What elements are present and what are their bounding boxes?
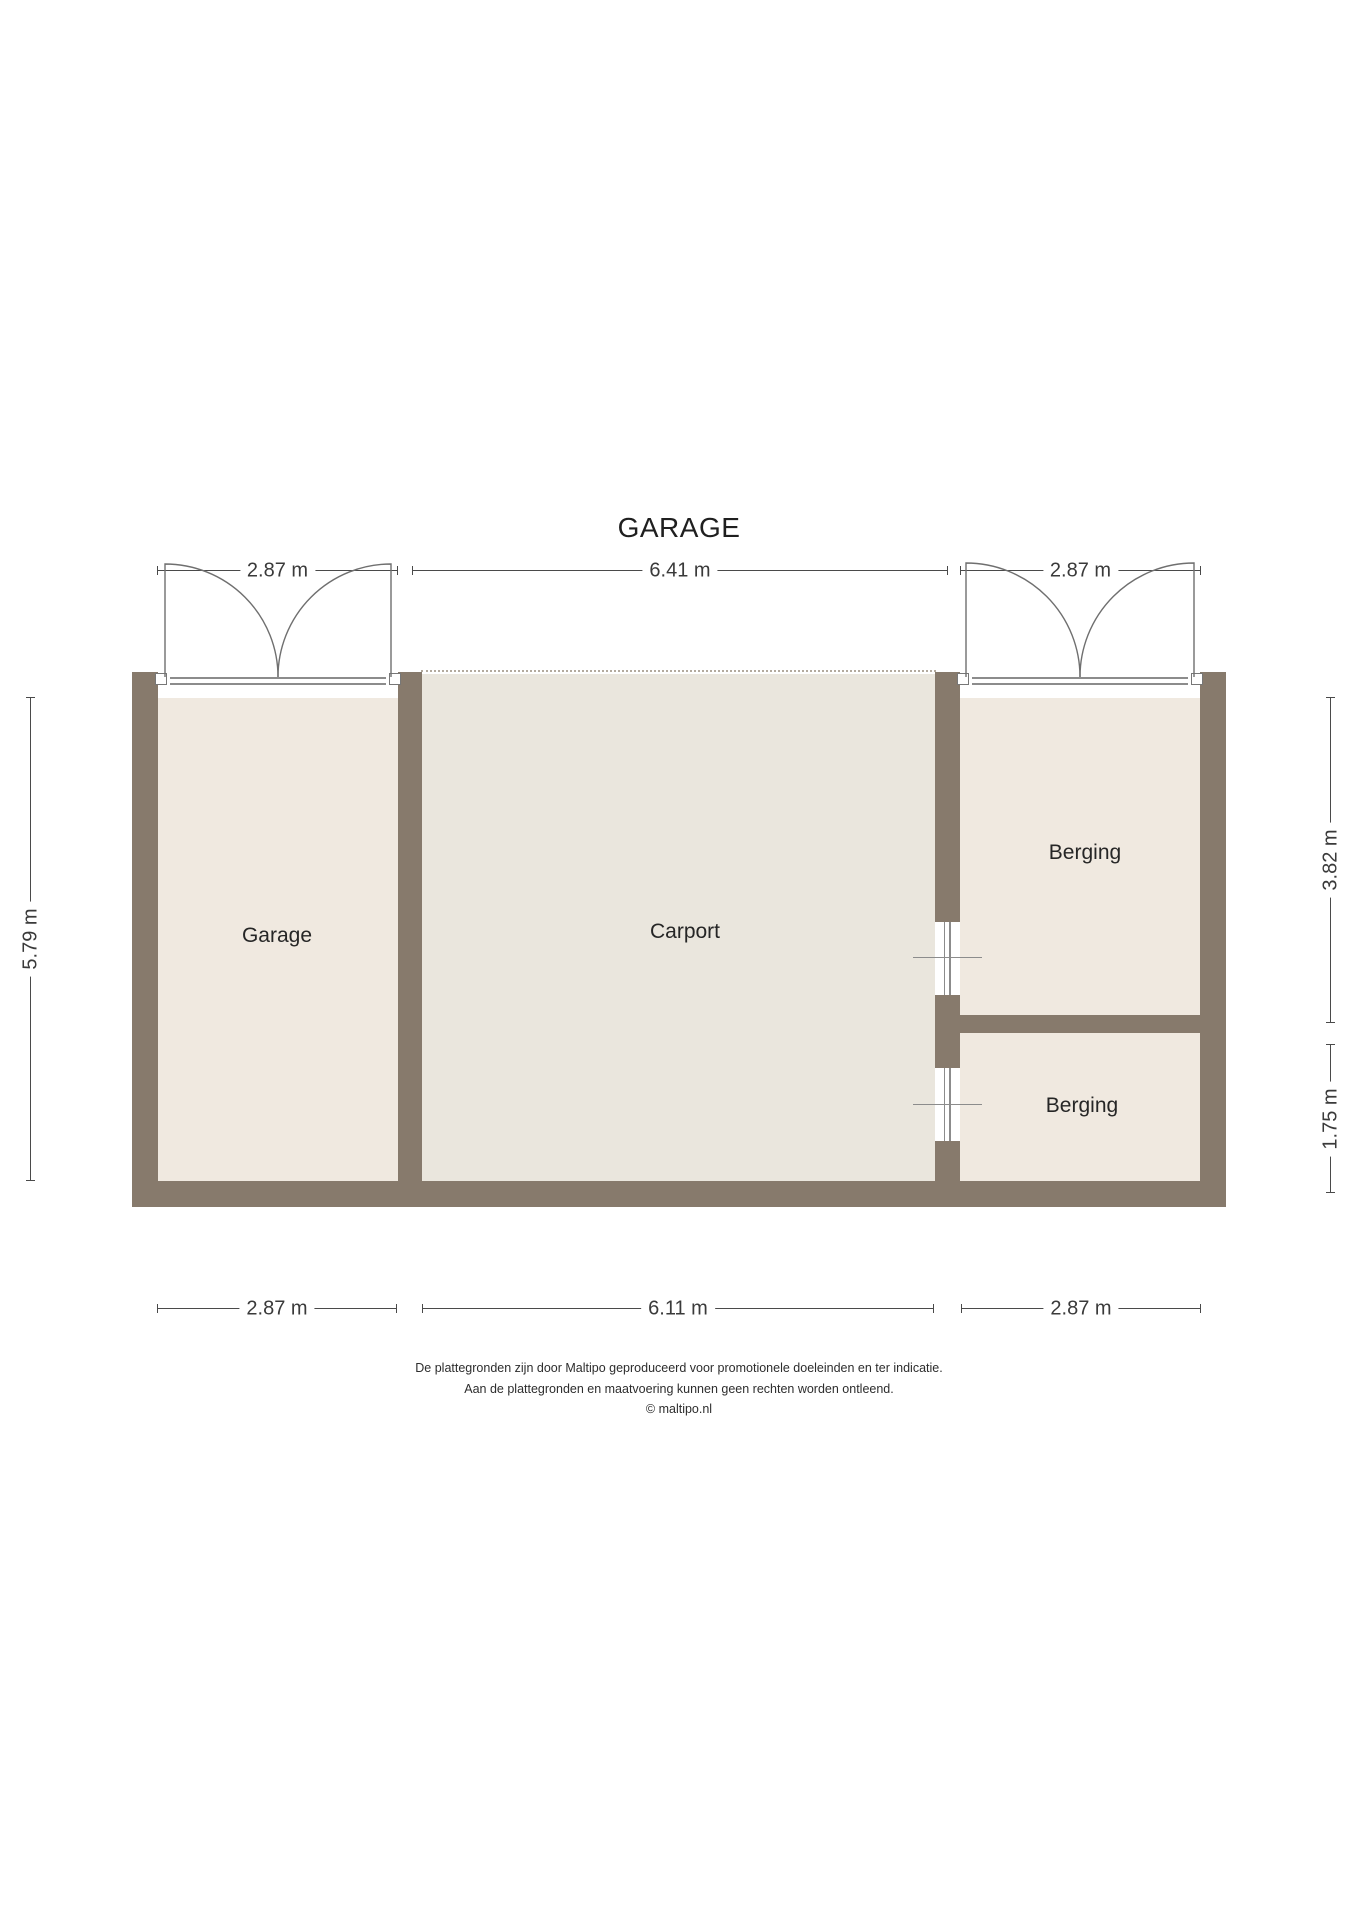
dim-label: 5.79 m [19, 901, 42, 976]
dim-tick [396, 1304, 397, 1313]
plan-title: GARAGE [0, 512, 1358, 544]
dim-tick [26, 1180, 35, 1181]
dim-bottom-center: 6.11 m [422, 1301, 934, 1315]
door-leaf-arc [165, 564, 278, 677]
dim-tick [1200, 1304, 1201, 1313]
wall-carport-berging-top [935, 672, 960, 922]
door-swing-line [913, 1104, 982, 1105]
disclaimer-line-3: © maltipo.nl [0, 1399, 1358, 1420]
wall-outer-right [1200, 672, 1226, 1207]
door-swing-line [913, 957, 982, 958]
dim-tick [26, 697, 35, 698]
dim-right-bottom: 1.75 m [1323, 1044, 1337, 1193]
dim-label: 2.87 m [239, 1297, 314, 1320]
dim-label: 3.82 m [1319, 822, 1342, 897]
dim-bottom-left: 2.87 m [157, 1301, 397, 1315]
dim-label: 6.11 m [641, 1297, 715, 1320]
room-label-garage: Garage [242, 924, 312, 948]
door-opening-berging-top [935, 922, 960, 995]
door-leaf-line [944, 922, 946, 995]
double-door-swing-symbols [130, 550, 1220, 685]
dim-label: 2.87 m [1043, 1297, 1118, 1320]
dim-tick [1326, 1192, 1335, 1193]
wall-outer-bottom [132, 1181, 1226, 1207]
wall-carport-berging-bottom [935, 1141, 960, 1181]
door-leaf-arc [278, 564, 391, 677]
floor-plan-page: GARAGE 2.87 m 6.41 m 2.87 m [0, 0, 1358, 1920]
wall-garage-carport [398, 672, 422, 1181]
wall-outer-left [132, 672, 158, 1207]
dim-tick [961, 1304, 962, 1313]
dim-right-top: 3.82 m [1323, 697, 1337, 1023]
door-leaf-line [949, 922, 951, 995]
dim-tick [1326, 1044, 1335, 1045]
disclaimer-line-2: Aan de plattegronden en maatvoering kunn… [0, 1379, 1358, 1400]
wall-carport-berging-mid [935, 995, 960, 1068]
door-leaf-arc [1080, 563, 1194, 677]
dim-left: 5.79 m [23, 697, 37, 1181]
dim-tick [422, 1304, 423, 1313]
dim-label: 1.75 m [1319, 1081, 1342, 1156]
dim-bottom-right: 2.87 m [961, 1301, 1201, 1315]
dim-tick [1326, 1022, 1335, 1023]
dim-tick [157, 1304, 158, 1313]
dim-tick [933, 1304, 934, 1313]
room-label-carport: Carport [650, 920, 720, 944]
disclaimer: De plattegronden zijn door Maltipo gepro… [0, 1358, 1358, 1420]
room-label-berging-top: Berging [1049, 841, 1121, 865]
wall-berging-divider [960, 1015, 1200, 1033]
room-label-berging-bottom: Berging [1046, 1094, 1118, 1118]
dim-tick [1326, 697, 1335, 698]
door-leaf-arc [966, 563, 1080, 677]
disclaimer-line-1: De plattegronden zijn door Maltipo gepro… [0, 1358, 1358, 1379]
